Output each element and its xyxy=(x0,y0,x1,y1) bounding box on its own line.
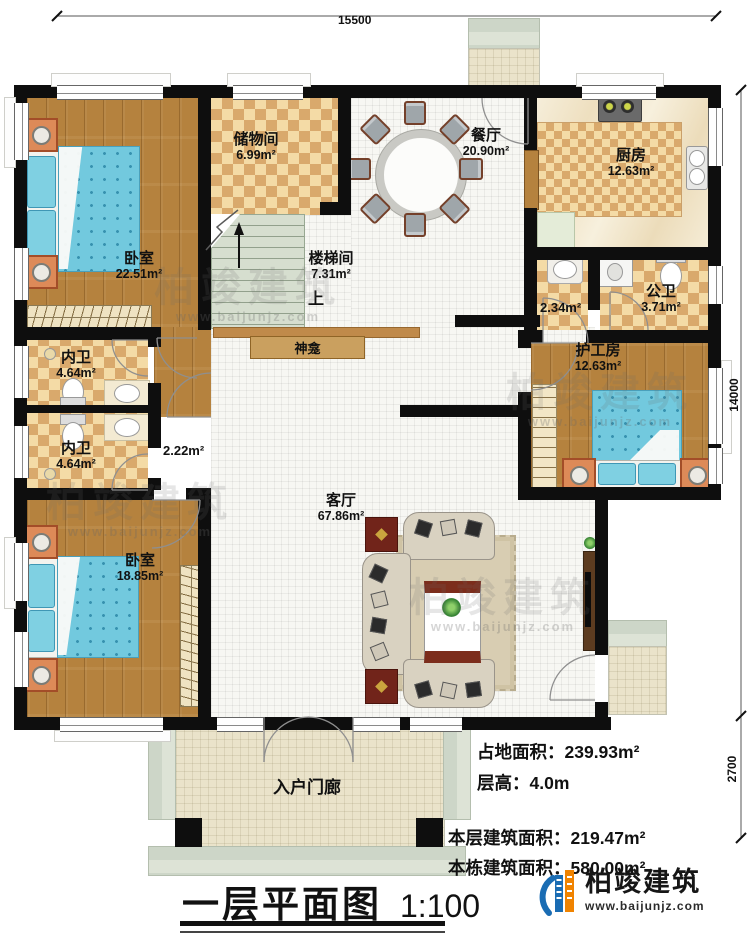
brand-name: 柏竣建筑 xyxy=(585,869,705,896)
floor-drain xyxy=(44,468,56,480)
wall xyxy=(14,488,154,500)
sofa-bottom xyxy=(403,659,495,708)
stair-up-label: 上 xyxy=(308,291,324,309)
wall xyxy=(518,392,531,500)
sofa-pillow xyxy=(465,681,482,698)
window xyxy=(708,108,723,166)
window xyxy=(353,717,400,732)
wall xyxy=(338,85,351,215)
window xyxy=(14,346,29,398)
room-label-corridor: 2.22m² xyxy=(163,443,204,458)
window xyxy=(233,85,303,100)
window xyxy=(14,248,29,300)
title-scale: 1:100 xyxy=(400,888,480,925)
dimension-width-top: 15500 xyxy=(338,13,371,27)
wall xyxy=(524,208,537,330)
side-table xyxy=(365,669,398,704)
wall xyxy=(518,330,531,348)
shrine-box: 神龛 xyxy=(250,336,365,359)
nightstand xyxy=(24,658,58,692)
dimension-porch-right: 2700 xyxy=(725,749,739,789)
info-this-floor-area: 本层建筑面积：219.47m² xyxy=(448,825,645,850)
bed2-pillow xyxy=(28,610,55,652)
wall xyxy=(518,487,721,500)
stove-burner xyxy=(603,100,616,113)
window xyxy=(14,543,29,601)
room-label-bedroom2: 卧室 18.85m² xyxy=(117,552,164,584)
window xyxy=(60,717,163,732)
sofa-pillow xyxy=(369,564,389,584)
kitchen-cabinet xyxy=(537,212,575,249)
back-porch-steps xyxy=(468,18,540,50)
info-floor-height: 层高：4.0m xyxy=(477,770,569,795)
wall xyxy=(198,488,211,730)
porch-column xyxy=(175,818,202,847)
tv xyxy=(585,572,591,627)
info-land-area: 占地面积：239.93m² xyxy=(477,739,639,764)
sofa-pillow xyxy=(414,680,433,699)
wall xyxy=(455,315,540,327)
bed2-pillow xyxy=(28,564,55,608)
bed3-pillow xyxy=(598,463,636,485)
room-label-inner-bath2: 内卫 4.64m² xyxy=(56,440,96,472)
bed3-pillow xyxy=(638,463,676,485)
sofa-pillow xyxy=(414,519,433,538)
window xyxy=(708,368,723,444)
wall xyxy=(524,247,721,260)
brand-url: www.baijunjz.com xyxy=(585,899,705,913)
drawing-title: 一层平面图 1:100 xyxy=(182,874,480,928)
shrine-label: 神龛 xyxy=(294,338,320,357)
stove-burner xyxy=(621,100,634,113)
back-porch-floor xyxy=(468,48,540,87)
window xyxy=(14,426,29,478)
wall xyxy=(400,405,518,417)
room-label-bedroom1: 卧室 22.51m² xyxy=(116,250,163,282)
wall xyxy=(595,500,608,655)
coffee-table-plant xyxy=(442,598,461,617)
public-bath-sink-basin xyxy=(553,260,577,279)
wall xyxy=(198,85,211,330)
wall xyxy=(595,702,608,730)
wall xyxy=(320,202,351,215)
coffee-table xyxy=(424,581,481,663)
room-label-dining: 餐厅 20.90m² xyxy=(463,127,510,159)
window xyxy=(582,85,656,100)
wall xyxy=(524,85,537,150)
window xyxy=(708,448,723,484)
room-label-public-bath: 公卫 3.71m² xyxy=(641,283,681,315)
room-label-inner-bath1: 内卫 4.64m² xyxy=(56,349,96,381)
dining-chair xyxy=(404,213,426,237)
sofa-left xyxy=(362,553,411,675)
nightstand xyxy=(24,525,58,559)
bed1-pillow xyxy=(27,210,56,260)
window xyxy=(57,85,163,100)
nightstand xyxy=(24,118,58,152)
dining-chair xyxy=(459,158,483,180)
window xyxy=(708,266,723,304)
washing-machine-drum xyxy=(607,263,623,281)
room-label-kitchen: 厨房 12.63m² xyxy=(608,147,655,179)
entry-porch-right-steps xyxy=(443,727,471,820)
brand-logo-icon xyxy=(538,866,578,916)
window xyxy=(217,717,263,732)
sofa-pillow xyxy=(370,642,390,662)
sofa-pillow xyxy=(440,682,458,700)
bath-sink-basin xyxy=(114,418,140,437)
porch-column xyxy=(416,818,443,847)
window xyxy=(14,103,29,160)
caregiver-closet xyxy=(532,384,557,489)
side-table xyxy=(365,517,398,552)
floor-plan-page: { "dimensions": { "width_top": "15500", … xyxy=(0,0,750,937)
title-underline xyxy=(180,921,445,926)
room-label-entry-porch: 入户门廊 xyxy=(273,778,341,798)
sofa-pillow xyxy=(464,519,482,537)
side-porch-floor xyxy=(608,646,667,715)
wall xyxy=(14,327,154,340)
room-label-bath-hall: 2.34m² xyxy=(540,300,581,315)
entry-porch-bottom-steps xyxy=(148,846,466,876)
kitchen-sink-basin xyxy=(689,168,705,185)
brand-logo: 柏竣建筑 www.baijunjz.com xyxy=(538,866,705,916)
staircase xyxy=(211,214,305,329)
bed1-pillow xyxy=(27,156,56,208)
room-label-caregiver: 护工房 12.63m² xyxy=(575,342,622,374)
wall xyxy=(27,405,148,413)
wall xyxy=(148,327,161,347)
sofa-pillow xyxy=(370,590,388,608)
title-text: 一层平面图 xyxy=(182,874,382,928)
floor-corridor xyxy=(154,327,211,417)
bedroom1-wardrobe xyxy=(27,305,152,329)
room-label-stairwell: 楼梯间 7.31m² xyxy=(308,250,353,282)
wall xyxy=(148,383,161,448)
sofa-pillow xyxy=(440,519,457,536)
bath-sink-basin xyxy=(114,384,140,403)
kitchen-door-leaf xyxy=(524,150,539,210)
sofa-pillow xyxy=(370,617,387,634)
nightstand xyxy=(24,255,58,289)
dimension-height-right: 14000 xyxy=(727,373,741,417)
kitchen-sink-basin xyxy=(689,150,705,167)
title-underline-2 xyxy=(180,931,445,933)
window xyxy=(410,717,462,732)
room-label-storage: 储物间 6.99m² xyxy=(233,131,278,163)
room-label-living: 客厅 67.86m² xyxy=(318,492,365,524)
sofa-top xyxy=(403,512,495,560)
side-porch-steps xyxy=(608,620,667,648)
floor-drain xyxy=(44,348,56,360)
brand-text-block: 柏竣建筑 www.baijunjz.com xyxy=(585,869,705,913)
window xyxy=(14,632,29,687)
dining-chair xyxy=(404,101,426,125)
wall xyxy=(588,260,600,310)
